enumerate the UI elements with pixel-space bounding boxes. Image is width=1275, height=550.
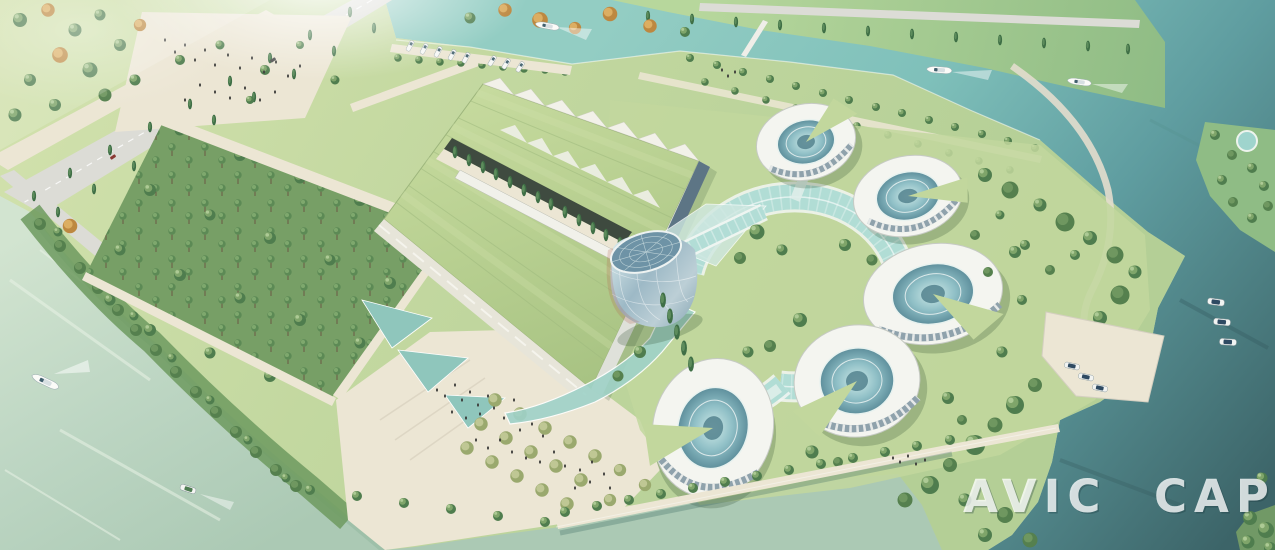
aerial-scene: AVIC CAPDI AVIC CAPDI xyxy=(0,0,1275,550)
architectural-rendering: AVIC CAPDI AVIC CAPDI xyxy=(0,0,1275,550)
watermark-text: AVIC CAPDI xyxy=(963,470,1275,523)
watermark: AVIC CAPDI AVIC CAPDI xyxy=(963,470,1275,525)
round-pond xyxy=(1237,131,1257,151)
